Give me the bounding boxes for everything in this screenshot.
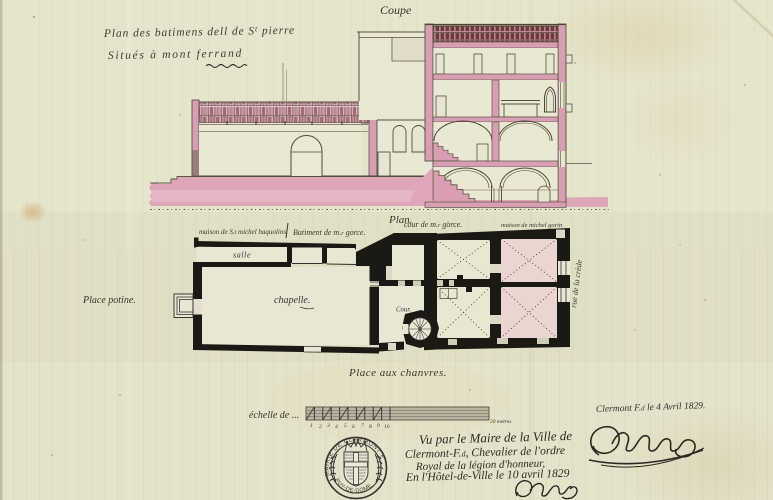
svg-text:20 métres: 20 métres: [490, 419, 511, 425]
svg-text:cour de m.r gorce.: cour de m.r gorce.: [404, 220, 462, 229]
svg-text:3: 3: [326, 423, 330, 429]
svg-text:7: 7: [361, 423, 364, 429]
svg-text:2: 2: [319, 424, 322, 430]
svg-text:maison de S.t michel baquolins: maison de S.t michel baquolins.: [199, 228, 288, 236]
svg-text:Batiment de m.r gorce.: Batiment de m.r gorce.: [293, 228, 365, 237]
svg-text:8: 8: [369, 424, 372, 430]
svg-text:Coupe: Coupe: [380, 3, 412, 17]
svg-text:Situés à mont ferrand: Situés à mont ferrand: [108, 48, 243, 62]
svg-text:4: 4: [335, 423, 338, 430]
svg-text:9: 9: [377, 423, 380, 429]
svg-text:Cour.: Cour.: [396, 307, 411, 314]
svg-text:6: 6: [352, 424, 355, 430]
svg-text:Place aux chanvres.: Place aux chanvres.: [348, 367, 447, 379]
svg-text:5: 5: [344, 423, 347, 429]
svg-text:1: 1: [310, 423, 313, 429]
svg-text:maison de michel gorin: maison de michel gorin: [501, 222, 562, 229]
svg-text:salle: salle: [233, 251, 251, 260]
svg-text:10: 10: [384, 424, 390, 430]
svg-text:chapelle.: chapelle.: [274, 295, 310, 306]
svg-text:Place potine.: Place potine.: [82, 295, 136, 306]
svg-text:échelle de ...: échelle de ...: [249, 410, 299, 421]
